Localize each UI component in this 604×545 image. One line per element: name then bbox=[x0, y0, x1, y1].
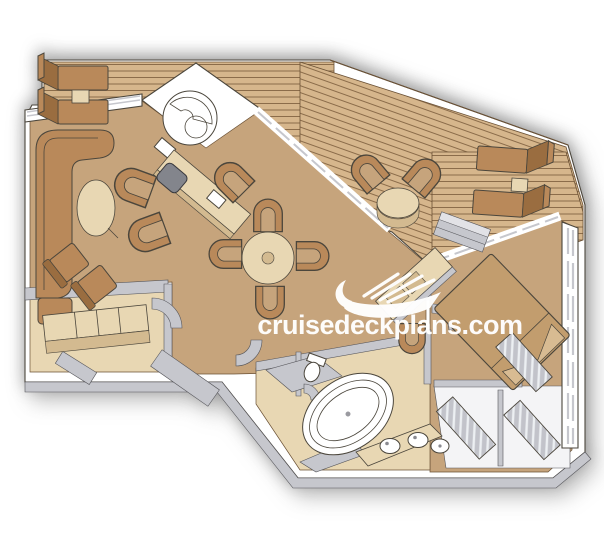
dining-chair bbox=[296, 242, 329, 271]
lounger bbox=[38, 53, 108, 90]
lounger-side-table bbox=[511, 178, 528, 192]
sink bbox=[408, 433, 428, 448]
sink bbox=[380, 439, 400, 454]
dining-chair bbox=[254, 199, 283, 232]
closet-wall-vertical bbox=[498, 390, 503, 466]
lounger-side-table bbox=[72, 90, 89, 103]
grand-piano bbox=[163, 91, 217, 145]
outdoor-table bbox=[377, 188, 419, 228]
floor-plan-svg: cruisedeckplans.com bbox=[0, 0, 604, 545]
watermark-text: cruisedeckplans.com bbox=[257, 310, 522, 340]
dining-table bbox=[242, 232, 294, 284]
floor-plan: cruisedeckplans.com bbox=[25, 53, 591, 488]
wc-sink bbox=[431, 439, 449, 453]
dining-chair bbox=[209, 240, 242, 269]
suite-floor-plan-image: cruisedeckplans.com bbox=[0, 0, 604, 545]
